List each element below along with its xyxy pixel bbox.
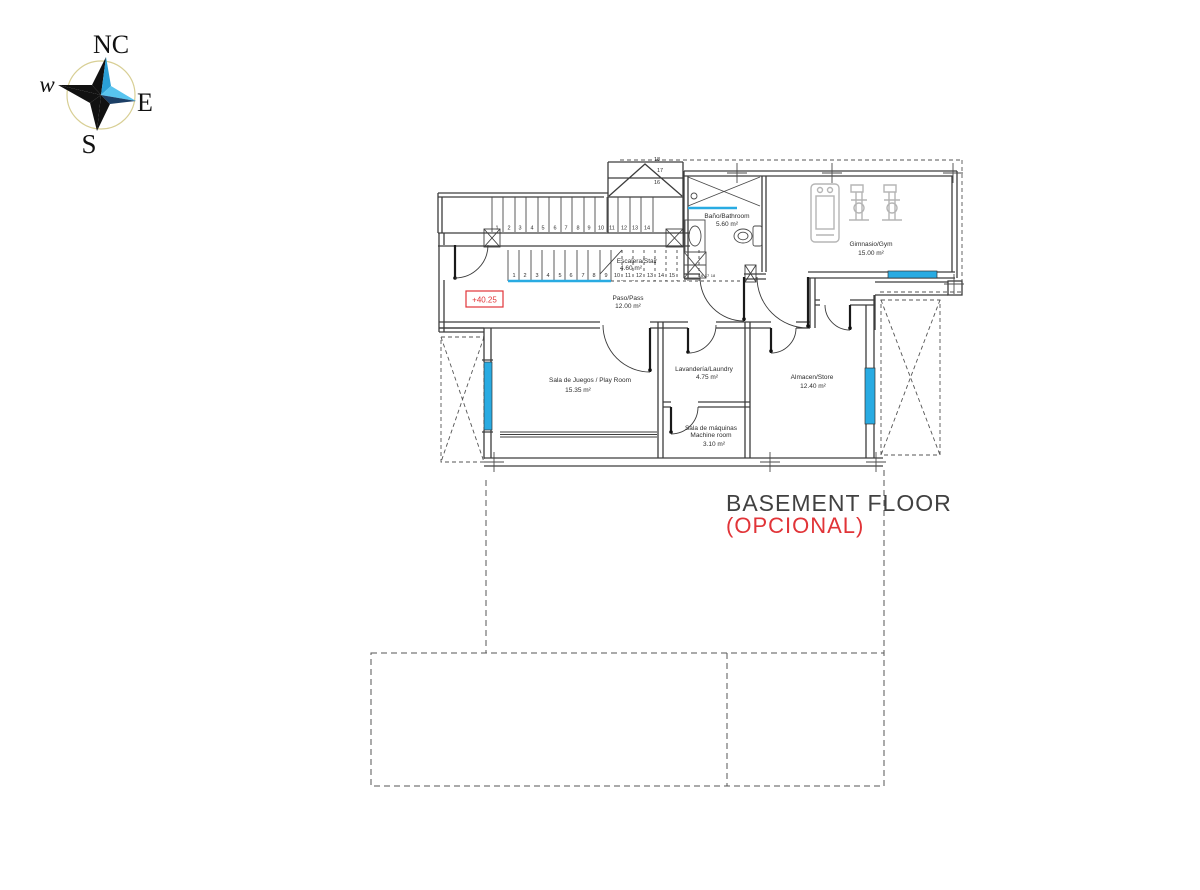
svg-text:9: 9 <box>587 226 590 232</box>
svg-text:13: 13 <box>647 273 653 279</box>
light-well-left <box>441 337 484 462</box>
svg-text:7: 7 <box>581 273 584 279</box>
svg-text:1: 1 <box>495 226 498 232</box>
svg-text:4: 4 <box>546 273 549 279</box>
svg-text:14: 14 <box>644 226 650 232</box>
svg-text:11: 11 <box>625 273 631 279</box>
shower-head-icon <box>691 193 697 199</box>
svg-text:9: 9 <box>604 273 607 279</box>
svg-text:18: 18 <box>654 157 660 163</box>
svg-text:5: 5 <box>558 273 561 279</box>
svg-text:3: 3 <box>535 273 538 279</box>
toilet-icon <box>734 226 762 246</box>
svg-text:Machine room: Machine room <box>690 432 731 439</box>
svg-text:4.75 m²: 4.75 m² <box>696 374 719 381</box>
svg-text:17: 17 <box>705 273 710 278</box>
compass-north-label: NC <box>93 30 129 59</box>
svg-text:2: 2 <box>507 226 510 232</box>
room-label-playroom: Sala de Juegos / Play Room 15.35 m² <box>549 377 631 394</box>
svg-text:Gimnasio/Gym: Gimnasio/Gym <box>850 241 893 248</box>
store-door <box>769 328 796 353</box>
svg-text:6: 6 <box>569 273 572 279</box>
svg-text:+40.25: +40.25 <box>472 296 497 305</box>
playroom-window <box>484 362 492 430</box>
weight-machine-icon-2 <box>882 185 902 220</box>
svg-text:14: 14 <box>658 273 664 279</box>
room-label-laundry: Lavandería/Laundry 4.75 m² <box>675 366 734 381</box>
light-well-right <box>881 300 940 455</box>
compass-east-label: E <box>137 88 153 117</box>
svg-text:Almacen/Store: Almacen/Store <box>791 374 834 381</box>
svg-text:12.00 m²: 12.00 m² <box>615 303 641 310</box>
gym-equipment <box>811 184 902 242</box>
room-label-hall: Paso/Pass 12.00 m² <box>612 295 644 310</box>
svg-text:2: 2 <box>523 273 526 279</box>
playroom-door <box>603 325 652 372</box>
svg-text:Baño/Bathroom: Baño/Bathroom <box>704 213 749 220</box>
svg-text:17: 17 <box>657 168 663 174</box>
exterior-stair <box>438 162 683 233</box>
svg-text:10: 10 <box>598 226 604 232</box>
walls <box>439 171 962 466</box>
weight-machine-icon <box>849 185 869 220</box>
room-label-machine-room: Sala de máquinas Machine room 3.10 m² <box>685 425 738 448</box>
svg-text:15: 15 <box>669 273 675 279</box>
svg-text:Sala de Juegos / Play Room: Sala de Juegos / Play Room <box>549 377 631 384</box>
svg-text:12.40 m²: 12.40 m² <box>800 383 826 390</box>
compass-west-label: w <box>39 72 55 97</box>
level-marker: +40.25 <box>466 291 503 307</box>
nook-door <box>825 305 852 330</box>
laundry-door <box>686 325 716 354</box>
svg-text:16: 16 <box>654 180 660 186</box>
entry-door <box>453 245 488 280</box>
room-label-stair: Escalera/Stair 4.60 m² <box>617 258 658 272</box>
svg-text:16: 16 <box>699 273 704 278</box>
bathroom-door <box>700 277 746 321</box>
svg-text:12: 12 <box>636 273 642 279</box>
svg-text:8: 8 <box>576 226 579 232</box>
gym-door <box>757 277 810 328</box>
title-optional: (OPCIONAL) <box>726 513 864 538</box>
svg-text:15.00 m²: 15.00 m² <box>858 250 884 257</box>
svg-text:6: 6 <box>553 226 556 232</box>
svg-text:Sala de máquinas: Sala de máquinas <box>685 425 738 432</box>
svg-text:1: 1 <box>512 273 515 279</box>
store-window <box>865 368 875 424</box>
plan-title: BASEMENT FLOOR (OPCIONAL) <box>726 490 952 538</box>
svg-text:11: 11 <box>609 226 615 232</box>
room-label-gym: Gimnasio/Gym 15.00 m² <box>850 241 893 257</box>
floor-plan: 1 2 3 4 5 6 7 8 9 10 11 12 13 14 18 17 1… <box>438 157 964 472</box>
svg-text:4.60 m²: 4.60 m² <box>620 265 643 272</box>
svg-text:5.60 m²: 5.60 m² <box>716 221 739 228</box>
gym-window <box>888 271 937 278</box>
svg-text:Escalera/Stair: Escalera/Stair <box>617 258 658 265</box>
svg-text:13: 13 <box>632 226 638 232</box>
stair-numbers-upper: 1 2 3 4 5 6 7 8 9 10 11 12 13 14 18 17 1… <box>495 157 663 232</box>
compass-rose: NC w E S <box>39 30 153 159</box>
svg-text:15.35 m²: 15.35 m² <box>565 387 591 394</box>
svg-text:Lavandería/Laundry: Lavandería/Laundry <box>675 366 734 373</box>
svg-text:3.10 m²: 3.10 m² <box>703 441 726 448</box>
svg-text:18: 18 <box>711 273 716 278</box>
room-label-store: Almacen/Store 12.40 m² <box>791 374 834 390</box>
svg-text:8: 8 <box>592 273 595 279</box>
svg-text:5: 5 <box>541 226 544 232</box>
compass-south-label: S <box>81 129 96 159</box>
svg-text:3: 3 <box>518 226 521 232</box>
svg-text:7: 7 <box>564 226 567 232</box>
svg-text:Paso/Pass: Paso/Pass <box>612 295 644 302</box>
svg-text:12: 12 <box>621 226 627 232</box>
floorplan-sheet: NC w E S <box>0 0 1200 890</box>
shower-glass <box>688 177 760 206</box>
room-label-bathroom: Baño/Bathroom 5.60 m² <box>704 213 749 228</box>
svg-text:10: 10 <box>614 273 620 279</box>
svg-text:4: 4 <box>530 226 533 232</box>
treadmill-icon <box>811 184 839 242</box>
